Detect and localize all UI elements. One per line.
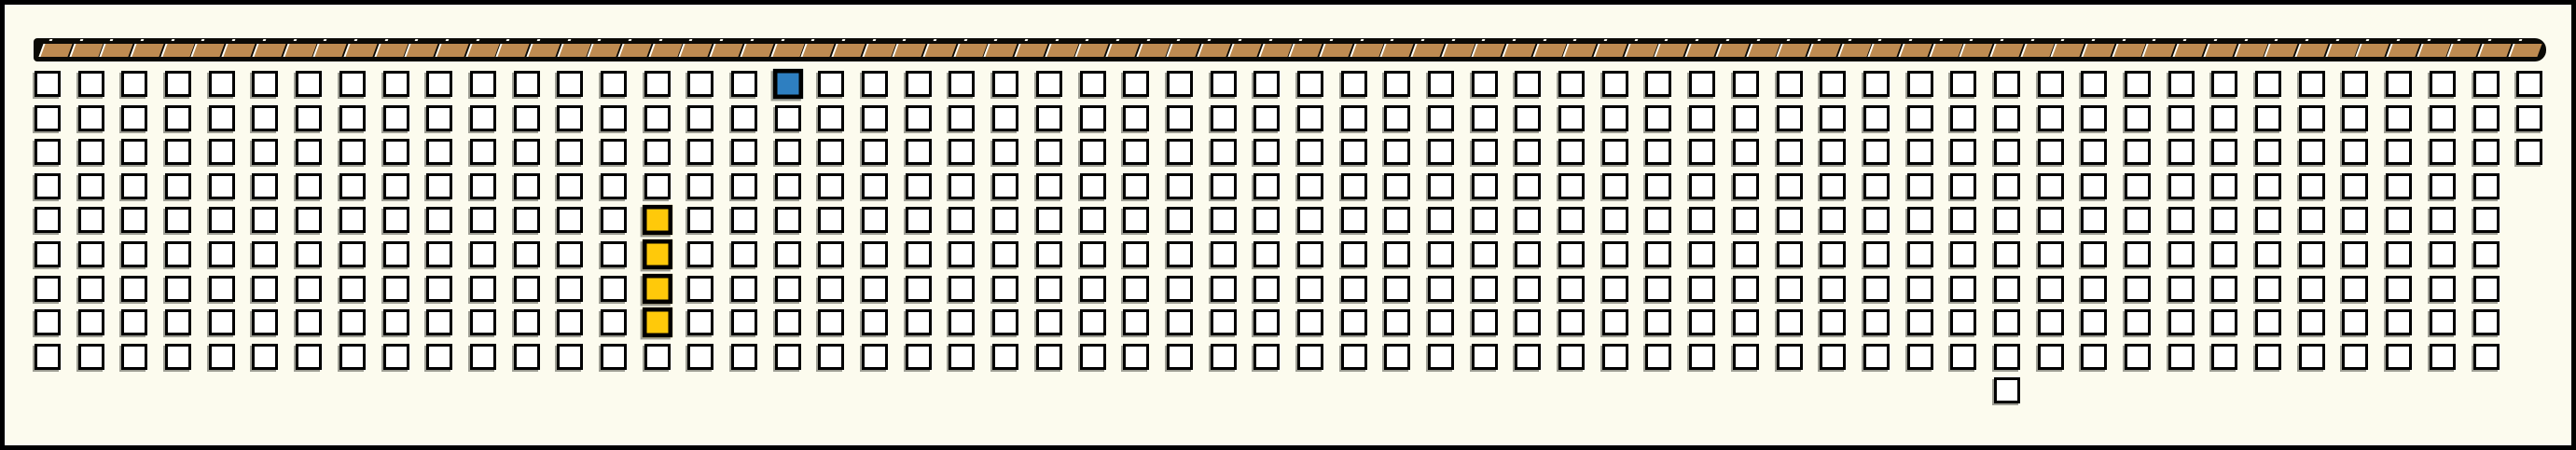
seat-cell[interactable] xyxy=(644,71,671,97)
seat-cell[interactable] xyxy=(731,241,757,267)
seat-cell[interactable] xyxy=(252,105,278,131)
seat-cell[interactable] xyxy=(1384,105,1410,131)
seat-cell[interactable] xyxy=(2211,173,2237,199)
seat-cell[interactable] xyxy=(1036,241,1062,267)
seat-cell[interactable] xyxy=(1558,276,1585,302)
seat-cell[interactable] xyxy=(1777,241,1803,267)
seat-cell[interactable] xyxy=(1341,276,1367,302)
seat-cell[interactable] xyxy=(1515,309,1541,335)
seat-cell[interactable] xyxy=(2125,309,2151,335)
seat-cell[interactable] xyxy=(1428,207,1454,233)
seat-cell[interactable] xyxy=(1080,105,1106,131)
seat-cell[interactable] xyxy=(165,173,191,199)
seat-cell[interactable] xyxy=(209,139,235,165)
seat-cell[interactable] xyxy=(2473,344,2500,370)
seat-cell[interactable] xyxy=(1950,105,1976,131)
seat-cell[interactable] xyxy=(1167,344,1193,370)
seat-cell[interactable] xyxy=(1820,241,1846,267)
seat-cell[interactable] xyxy=(1994,71,2020,97)
seat-cell[interactable] xyxy=(1080,276,1106,302)
seat-cell[interactable] xyxy=(78,344,104,370)
seat-cell[interactable] xyxy=(2473,71,2500,97)
seat-cell[interactable] xyxy=(775,105,801,131)
seat-cell[interactable] xyxy=(2255,241,2281,267)
seat-cell[interactable] xyxy=(1863,173,1890,199)
seat-cell[interactable] xyxy=(296,173,322,199)
seat-cell[interactable] xyxy=(557,276,583,302)
seat-cell[interactable] xyxy=(1428,139,1454,165)
seat-cell[interactable] xyxy=(601,105,627,131)
seat-cell[interactable] xyxy=(1689,344,1715,370)
seat-cell[interactable] xyxy=(2299,173,2325,199)
seat-cell[interactable] xyxy=(1689,139,1715,165)
seat-cell[interactable] xyxy=(339,139,366,165)
seat-cell[interactable] xyxy=(557,241,583,267)
seat-cell[interactable] xyxy=(1602,207,1628,233)
seat-cell[interactable] xyxy=(426,309,452,335)
seat-cell[interactable] xyxy=(2430,309,2456,335)
seat-cell[interactable] xyxy=(687,105,713,131)
seat-cell[interactable] xyxy=(2342,309,2368,335)
seat-cell[interactable] xyxy=(2168,309,2195,335)
seat-cell[interactable] xyxy=(209,344,235,370)
seat-cell[interactable] xyxy=(121,207,147,233)
seat-cell[interactable] xyxy=(1645,71,1671,97)
seat-cell[interactable] xyxy=(1341,105,1367,131)
seat-cell[interactable] xyxy=(1689,309,1715,335)
seat-cell[interactable] xyxy=(2038,139,2064,165)
seat-cell[interactable] xyxy=(1863,309,1890,335)
seat-cell[interactable] xyxy=(121,276,147,302)
seat-cell[interactable] xyxy=(601,344,627,370)
seat-cell[interactable] xyxy=(1689,276,1715,302)
seat-cell[interactable] xyxy=(1602,105,1628,131)
seat-cell[interactable] xyxy=(1645,139,1671,165)
seat-cell[interactable] xyxy=(2516,71,2542,97)
seat-cell[interactable] xyxy=(862,71,888,97)
seat-cell[interactable] xyxy=(35,344,61,370)
seat-cell[interactable] xyxy=(862,139,888,165)
seat-cell[interactable] xyxy=(1036,344,1062,370)
seat-cell[interactable] xyxy=(731,139,757,165)
seat-cell[interactable] xyxy=(2516,105,2542,131)
seat-cell[interactable] xyxy=(78,173,104,199)
seat-cell[interactable] xyxy=(818,309,844,335)
seat-cell[interactable] xyxy=(2299,207,2325,233)
seat-cell[interactable] xyxy=(1950,241,1976,267)
seat-cell[interactable] xyxy=(2473,241,2500,267)
seat-cell[interactable] xyxy=(2299,71,2325,97)
seat-cell[interactable] xyxy=(1080,207,1106,233)
seat-cell[interactable] xyxy=(992,309,1018,335)
seat-cell[interactable] xyxy=(601,207,627,233)
seat-cell[interactable] xyxy=(687,309,713,335)
seat-cell[interactable] xyxy=(1950,344,1976,370)
seat-cell[interactable] xyxy=(1602,71,1628,97)
seat-cell[interactable] xyxy=(2125,105,2151,131)
seat-cell[interactable] xyxy=(1341,344,1367,370)
seat-cell[interactable] xyxy=(1820,276,1846,302)
seat-cell[interactable] xyxy=(557,139,583,165)
seat-cell[interactable] xyxy=(2386,71,2412,97)
seat-cell[interactable] xyxy=(687,139,713,165)
seat-cell[interactable] xyxy=(1994,139,2020,165)
seat-cell[interactable] xyxy=(992,173,1018,199)
seat-cell[interactable] xyxy=(2038,71,2064,97)
seat-cell[interactable] xyxy=(1820,71,1846,97)
seat-cell[interactable] xyxy=(731,105,757,131)
seat-cell[interactable] xyxy=(1950,309,1976,335)
seat-cell[interactable] xyxy=(1994,241,2020,267)
seat-cell[interactable] xyxy=(601,139,627,165)
seat-cell[interactable] xyxy=(1645,173,1671,199)
seat-cell[interactable] xyxy=(687,241,713,267)
seat-cell[interactable] xyxy=(2299,276,2325,302)
seat-cell[interactable] xyxy=(1472,71,1498,97)
seat-cell[interactable] xyxy=(1820,309,1846,335)
seat-cell[interactable] xyxy=(2125,344,2151,370)
seat-cell[interactable] xyxy=(731,309,757,335)
seat-cell[interactable] xyxy=(470,71,496,97)
seat-cell[interactable] xyxy=(992,344,1018,370)
seat-cell[interactable] xyxy=(2211,276,2237,302)
seat-cell[interactable] xyxy=(818,344,844,370)
seat-cell-blue[interactable] xyxy=(773,69,803,99)
seat-cell[interactable] xyxy=(557,71,583,97)
seat-cell[interactable] xyxy=(818,241,844,267)
seat-cell[interactable] xyxy=(2299,105,2325,131)
seat-cell-yellow[interactable] xyxy=(643,273,672,303)
seat-cell[interactable] xyxy=(2125,71,2151,97)
seat-cell[interactable] xyxy=(2430,71,2456,97)
seat-cell[interactable] xyxy=(2038,276,2064,302)
seat-cell[interactable] xyxy=(1472,173,1498,199)
seat-cell[interactable] xyxy=(296,241,322,267)
seat-cell[interactable] xyxy=(1428,105,1454,131)
seat-cell[interactable] xyxy=(1253,344,1280,370)
seat-cell[interactable] xyxy=(252,276,278,302)
seat-cell[interactable] xyxy=(1167,173,1193,199)
seat-cell[interactable] xyxy=(1645,344,1671,370)
seat-cell[interactable] xyxy=(514,71,540,97)
seat-cell[interactable] xyxy=(1123,71,1149,97)
seat-cell[interactable] xyxy=(1863,105,1890,131)
seat-cell[interactable] xyxy=(1689,207,1715,233)
seat-cell[interactable] xyxy=(1602,276,1628,302)
seat-cell[interactable] xyxy=(2168,241,2195,267)
seat-cell[interactable] xyxy=(1907,71,1933,97)
seat-cell[interactable] xyxy=(557,173,583,199)
seat-cell[interactable] xyxy=(121,105,147,131)
seat-cell[interactable] xyxy=(1994,344,2020,370)
seat-cell[interactable] xyxy=(78,105,104,131)
seat-cell[interactable] xyxy=(1211,71,1237,97)
seat-cell[interactable] xyxy=(1645,207,1671,233)
seat-cell[interactable] xyxy=(2473,139,2500,165)
seat-cell[interactable] xyxy=(1428,309,1454,335)
seat-cell[interactable] xyxy=(1472,105,1498,131)
seat-cell[interactable] xyxy=(1297,207,1323,233)
seat-cell[interactable] xyxy=(1253,207,1280,233)
seat-cell[interactable] xyxy=(775,276,801,302)
seat-cell[interactable] xyxy=(1472,344,1498,370)
seat-cell[interactable] xyxy=(2386,105,2412,131)
seat-cell[interactable] xyxy=(1211,241,1237,267)
seat-cell[interactable] xyxy=(1777,276,1803,302)
seat-cell[interactable] xyxy=(2081,207,2107,233)
seat-cell[interactable] xyxy=(1211,207,1237,233)
seat-cell[interactable] xyxy=(1384,241,1410,267)
seat-cell[interactable] xyxy=(775,139,801,165)
seat-cell-yellow[interactable] xyxy=(643,307,672,337)
seat-cell[interactable] xyxy=(1036,71,1062,97)
seat-cell[interactable] xyxy=(383,207,409,233)
seat-cell[interactable] xyxy=(252,71,278,97)
seat-cell[interactable] xyxy=(1950,276,1976,302)
seat-cell[interactable] xyxy=(1515,207,1541,233)
seat-cell[interactable] xyxy=(1297,105,1323,131)
seat-cell[interactable] xyxy=(1733,207,1759,233)
seat-cell[interactable] xyxy=(1123,139,1149,165)
seat-cell[interactable] xyxy=(2125,241,2151,267)
seat-cell[interactable] xyxy=(209,309,235,335)
seat-cell[interactable] xyxy=(2473,207,2500,233)
seat-cell[interactable] xyxy=(1167,276,1193,302)
seat-cell[interactable] xyxy=(383,276,409,302)
seat-cell[interactable] xyxy=(1558,344,1585,370)
seat-cell[interactable] xyxy=(2081,173,2107,199)
seat-cell[interactable] xyxy=(1036,309,1062,335)
seat-cell[interactable] xyxy=(470,309,496,335)
seat-cell[interactable] xyxy=(1384,173,1410,199)
seat-cell[interactable] xyxy=(296,71,322,97)
seat-cell[interactable] xyxy=(906,139,932,165)
seat-cell[interactable] xyxy=(1428,344,1454,370)
seat-cell[interactable] xyxy=(687,276,713,302)
seat-cell[interactable] xyxy=(252,173,278,199)
seat-cell[interactable] xyxy=(1211,344,1237,370)
seat-cell[interactable] xyxy=(1211,139,1237,165)
seat-cell[interactable] xyxy=(2342,276,2368,302)
seat-cell[interactable] xyxy=(1994,276,2020,302)
seat-cell[interactable] xyxy=(1036,139,1062,165)
seat-cell[interactable] xyxy=(1211,276,1237,302)
seat-cell[interactable] xyxy=(1515,241,1541,267)
seat-cell[interactable] xyxy=(775,344,801,370)
seat-cell[interactable] xyxy=(1994,105,2020,131)
seat-cell[interactable] xyxy=(1297,71,1323,97)
seat-cell[interactable] xyxy=(2255,207,2281,233)
seat-cell[interactable] xyxy=(470,344,496,370)
seat-cell[interactable] xyxy=(1863,344,1890,370)
seat-cell[interactable] xyxy=(1167,71,1193,97)
seat-cell[interactable] xyxy=(2081,105,2107,131)
seat-cell[interactable] xyxy=(2299,344,2325,370)
seat-cell[interactable] xyxy=(818,71,844,97)
seat-cell[interactable] xyxy=(1472,309,1498,335)
seat-cell-detached[interactable] xyxy=(1994,377,2020,403)
seat-cell[interactable] xyxy=(121,173,147,199)
seat-cell[interactable] xyxy=(1515,276,1541,302)
seat-cell[interactable] xyxy=(2255,139,2281,165)
seat-cell[interactable] xyxy=(1733,241,1759,267)
seat-cell[interactable] xyxy=(1733,309,1759,335)
seat-cell[interactable] xyxy=(644,344,671,370)
seat-cell[interactable] xyxy=(862,241,888,267)
seat-cell[interactable] xyxy=(2038,309,2064,335)
seat-cell[interactable] xyxy=(992,139,1018,165)
seat-cell[interactable] xyxy=(1428,276,1454,302)
seat-cell[interactable] xyxy=(383,344,409,370)
seat-cell[interactable] xyxy=(992,276,1018,302)
seat-cell[interactable] xyxy=(1167,105,1193,131)
seat-cell[interactable] xyxy=(78,139,104,165)
seat-cell[interactable] xyxy=(514,344,540,370)
seat-cell[interactable] xyxy=(209,173,235,199)
seat-cell[interactable] xyxy=(1428,173,1454,199)
seat-cell[interactable] xyxy=(906,173,932,199)
seat-cell[interactable] xyxy=(1080,309,1106,335)
seat-cell[interactable] xyxy=(35,173,61,199)
seat-cell[interactable] xyxy=(35,276,61,302)
seat-cell[interactable] xyxy=(1297,276,1323,302)
seat-cell[interactable] xyxy=(1950,71,1976,97)
seat-cell[interactable] xyxy=(1253,139,1280,165)
seat-cell[interactable] xyxy=(514,241,540,267)
seat-cell[interactable] xyxy=(2386,173,2412,199)
seat-cell[interactable] xyxy=(2386,344,2412,370)
seat-cell[interactable] xyxy=(2342,71,2368,97)
seat-cell[interactable] xyxy=(1820,207,1846,233)
seat-cell[interactable] xyxy=(557,309,583,335)
seat-cell[interactable] xyxy=(1558,105,1585,131)
seat-cell[interactable] xyxy=(296,309,322,335)
seat-cell[interactable] xyxy=(1689,173,1715,199)
seat-cell[interactable] xyxy=(949,241,975,267)
seat-cell[interactable] xyxy=(1863,71,1890,97)
seat-cell[interactable] xyxy=(1123,207,1149,233)
seat-cell[interactable] xyxy=(2342,139,2368,165)
seat-cell[interactable] xyxy=(2211,241,2237,267)
seat-cell[interactable] xyxy=(906,105,932,131)
seat-cell[interactable] xyxy=(470,276,496,302)
seat-cell[interactable] xyxy=(1777,105,1803,131)
seat-cell[interactable] xyxy=(1907,344,1933,370)
seat-cell[interactable] xyxy=(1733,105,1759,131)
seat-cell[interactable] xyxy=(906,309,932,335)
seat-cell[interactable] xyxy=(2386,139,2412,165)
seat-cell[interactable] xyxy=(1384,71,1410,97)
seat-cell[interactable] xyxy=(1515,105,1541,131)
seat-cell[interactable] xyxy=(2168,276,2195,302)
seat-cell[interactable] xyxy=(1123,276,1149,302)
seat-cell[interactable] xyxy=(2430,139,2456,165)
seat-cell[interactable] xyxy=(1907,276,1933,302)
seat-cell[interactable] xyxy=(339,207,366,233)
seat-cell[interactable] xyxy=(1123,105,1149,131)
seat-cell[interactable] xyxy=(165,309,191,335)
seat-cell[interactable] xyxy=(2473,105,2500,131)
seat-cell[interactable] xyxy=(949,139,975,165)
seat-cell[interactable] xyxy=(2168,207,2195,233)
seat-cell[interactable] xyxy=(1515,173,1541,199)
seat-cell[interactable] xyxy=(906,71,932,97)
seat-cell[interactable] xyxy=(1253,309,1280,335)
seat-cell[interactable] xyxy=(78,241,104,267)
seat-cell[interactable] xyxy=(1777,139,1803,165)
seat-cell[interactable] xyxy=(2342,241,2368,267)
seat-cell[interactable] xyxy=(2211,139,2237,165)
seat-cell[interactable] xyxy=(818,105,844,131)
seat-cell[interactable] xyxy=(2038,105,2064,131)
seat-cell[interactable] xyxy=(426,241,452,267)
seat-cell[interactable] xyxy=(1645,309,1671,335)
seat-cell[interactable] xyxy=(644,173,671,199)
seat-cell[interactable] xyxy=(165,105,191,131)
seat-cell[interactable] xyxy=(514,207,540,233)
seat-cell[interactable] xyxy=(1211,173,1237,199)
seat-cell[interactable] xyxy=(2211,207,2237,233)
seat-cell[interactable] xyxy=(1297,139,1323,165)
seat-cell[interactable] xyxy=(1297,309,1323,335)
seat-cell[interactable] xyxy=(1080,173,1106,199)
seat-cell[interactable] xyxy=(383,309,409,335)
seat-cell[interactable] xyxy=(1211,105,1237,131)
seat-cell[interactable] xyxy=(1602,241,1628,267)
seat-cell[interactable] xyxy=(1253,241,1280,267)
seat-cell[interactable] xyxy=(426,71,452,97)
seat-cell[interactable] xyxy=(2255,105,2281,131)
seat-cell[interactable] xyxy=(2342,105,2368,131)
seat-cell[interactable] xyxy=(2168,344,2195,370)
seat-cell[interactable] xyxy=(35,241,61,267)
seat-cell[interactable] xyxy=(1123,309,1149,335)
seat-cell[interactable] xyxy=(1863,139,1890,165)
seat-cell[interactable] xyxy=(557,344,583,370)
seat-cell[interactable] xyxy=(906,241,932,267)
seat-cell[interactable] xyxy=(818,139,844,165)
seat-cell[interactable] xyxy=(1167,309,1193,335)
seat-cell[interactable] xyxy=(1515,139,1541,165)
seat-cell[interactable] xyxy=(1167,241,1193,267)
seat-cell[interactable] xyxy=(1515,71,1541,97)
seat-cell[interactable] xyxy=(339,276,366,302)
seat-cell[interactable] xyxy=(1341,207,1367,233)
seat-cell[interactable] xyxy=(1123,241,1149,267)
seat-cell[interactable] xyxy=(514,276,540,302)
seat-cell[interactable] xyxy=(1472,241,1498,267)
seat-cell[interactable] xyxy=(121,309,147,335)
seat-cell[interactable] xyxy=(383,71,409,97)
seat-cell[interactable] xyxy=(1384,207,1410,233)
seat-cell[interactable] xyxy=(1950,173,1976,199)
seat-cell[interactable] xyxy=(2211,309,2237,335)
seat-cell[interactable] xyxy=(1907,309,1933,335)
seat-cell[interactable] xyxy=(2386,207,2412,233)
seat-cell[interactable] xyxy=(35,105,61,131)
seat-cell[interactable] xyxy=(1080,139,1106,165)
seat-cell[interactable] xyxy=(2125,139,2151,165)
seat-cell[interactable] xyxy=(1950,207,1976,233)
seat-cell[interactable] xyxy=(2081,241,2107,267)
seat-cell[interactable] xyxy=(862,344,888,370)
seat-cell[interactable] xyxy=(601,241,627,267)
seat-cell[interactable] xyxy=(2255,173,2281,199)
seat-cell[interactable] xyxy=(906,276,932,302)
seat-cell[interactable] xyxy=(2081,139,2107,165)
seat-cell[interactable] xyxy=(1558,139,1585,165)
seat-cell[interactable] xyxy=(2430,173,2456,199)
